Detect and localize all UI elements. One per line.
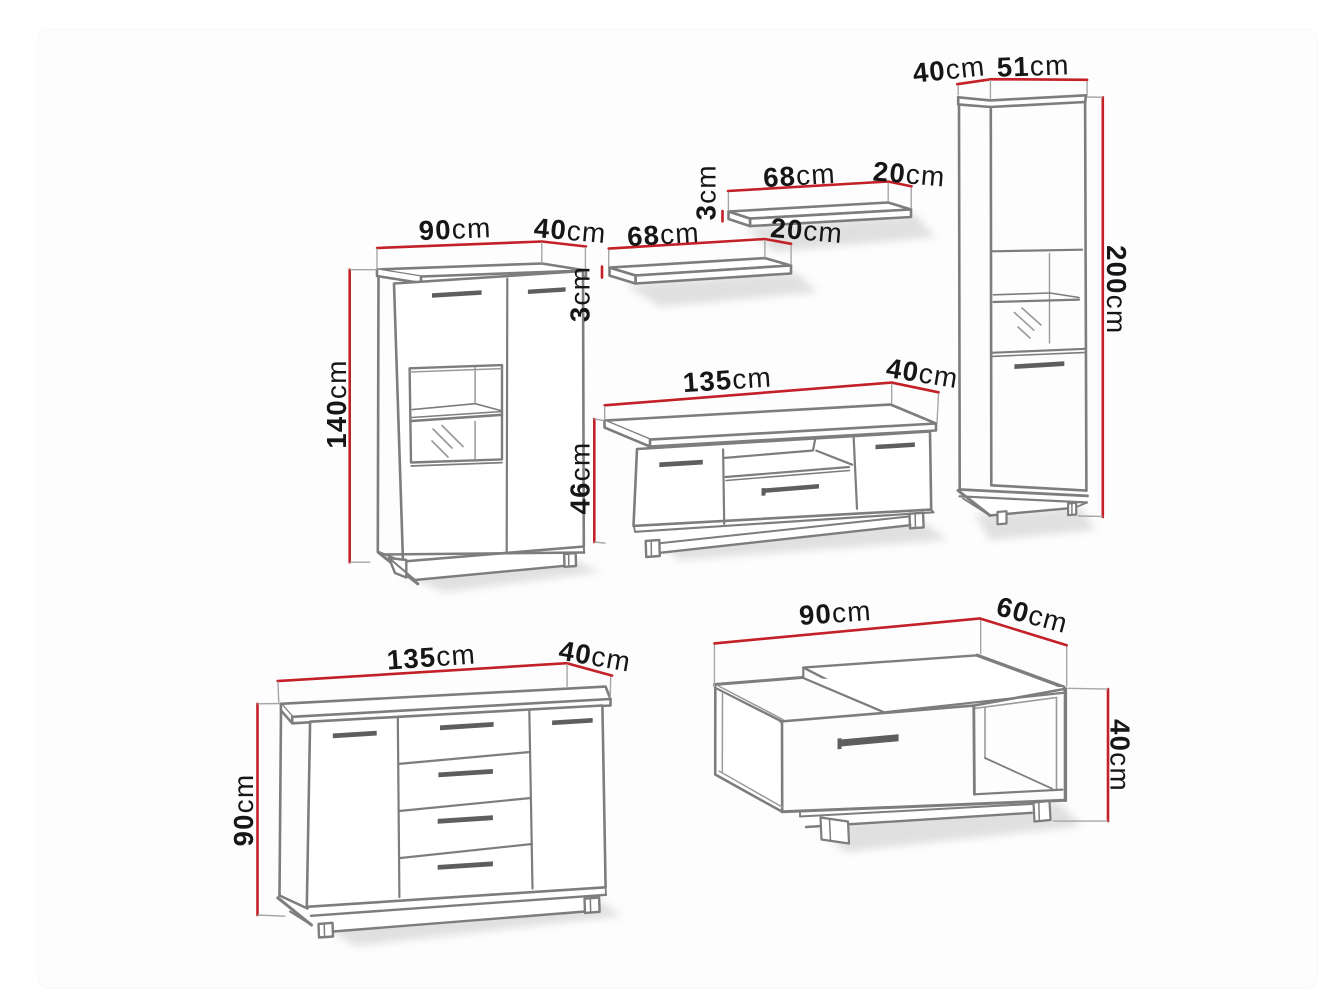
svg-text:90cm: 90cm	[418, 212, 492, 246]
svg-text:40cm: 40cm	[533, 212, 608, 249]
svg-text:200cm: 200cm	[1101, 245, 1132, 334]
svg-text:68cm: 68cm	[762, 158, 836, 193]
svg-text:40cm: 40cm	[1105, 719, 1136, 792]
svg-text:20cm: 20cm	[872, 155, 947, 192]
svg-text:90cm: 90cm	[228, 774, 259, 847]
svg-text:68cm: 68cm	[626, 217, 700, 252]
svg-text:46cm: 46cm	[565, 442, 596, 515]
svg-text:51cm: 51cm	[996, 49, 1070, 83]
svg-text:90cm: 90cm	[798, 595, 873, 631]
svg-text:140cm: 140cm	[321, 359, 352, 448]
svg-text:20cm: 20cm	[769, 212, 844, 249]
svg-text:3cm: 3cm	[691, 164, 722, 220]
svg-text:135cm: 135cm	[682, 361, 773, 398]
svg-text:3cm: 3cm	[564, 266, 595, 322]
svg-text:135cm: 135cm	[386, 638, 477, 675]
